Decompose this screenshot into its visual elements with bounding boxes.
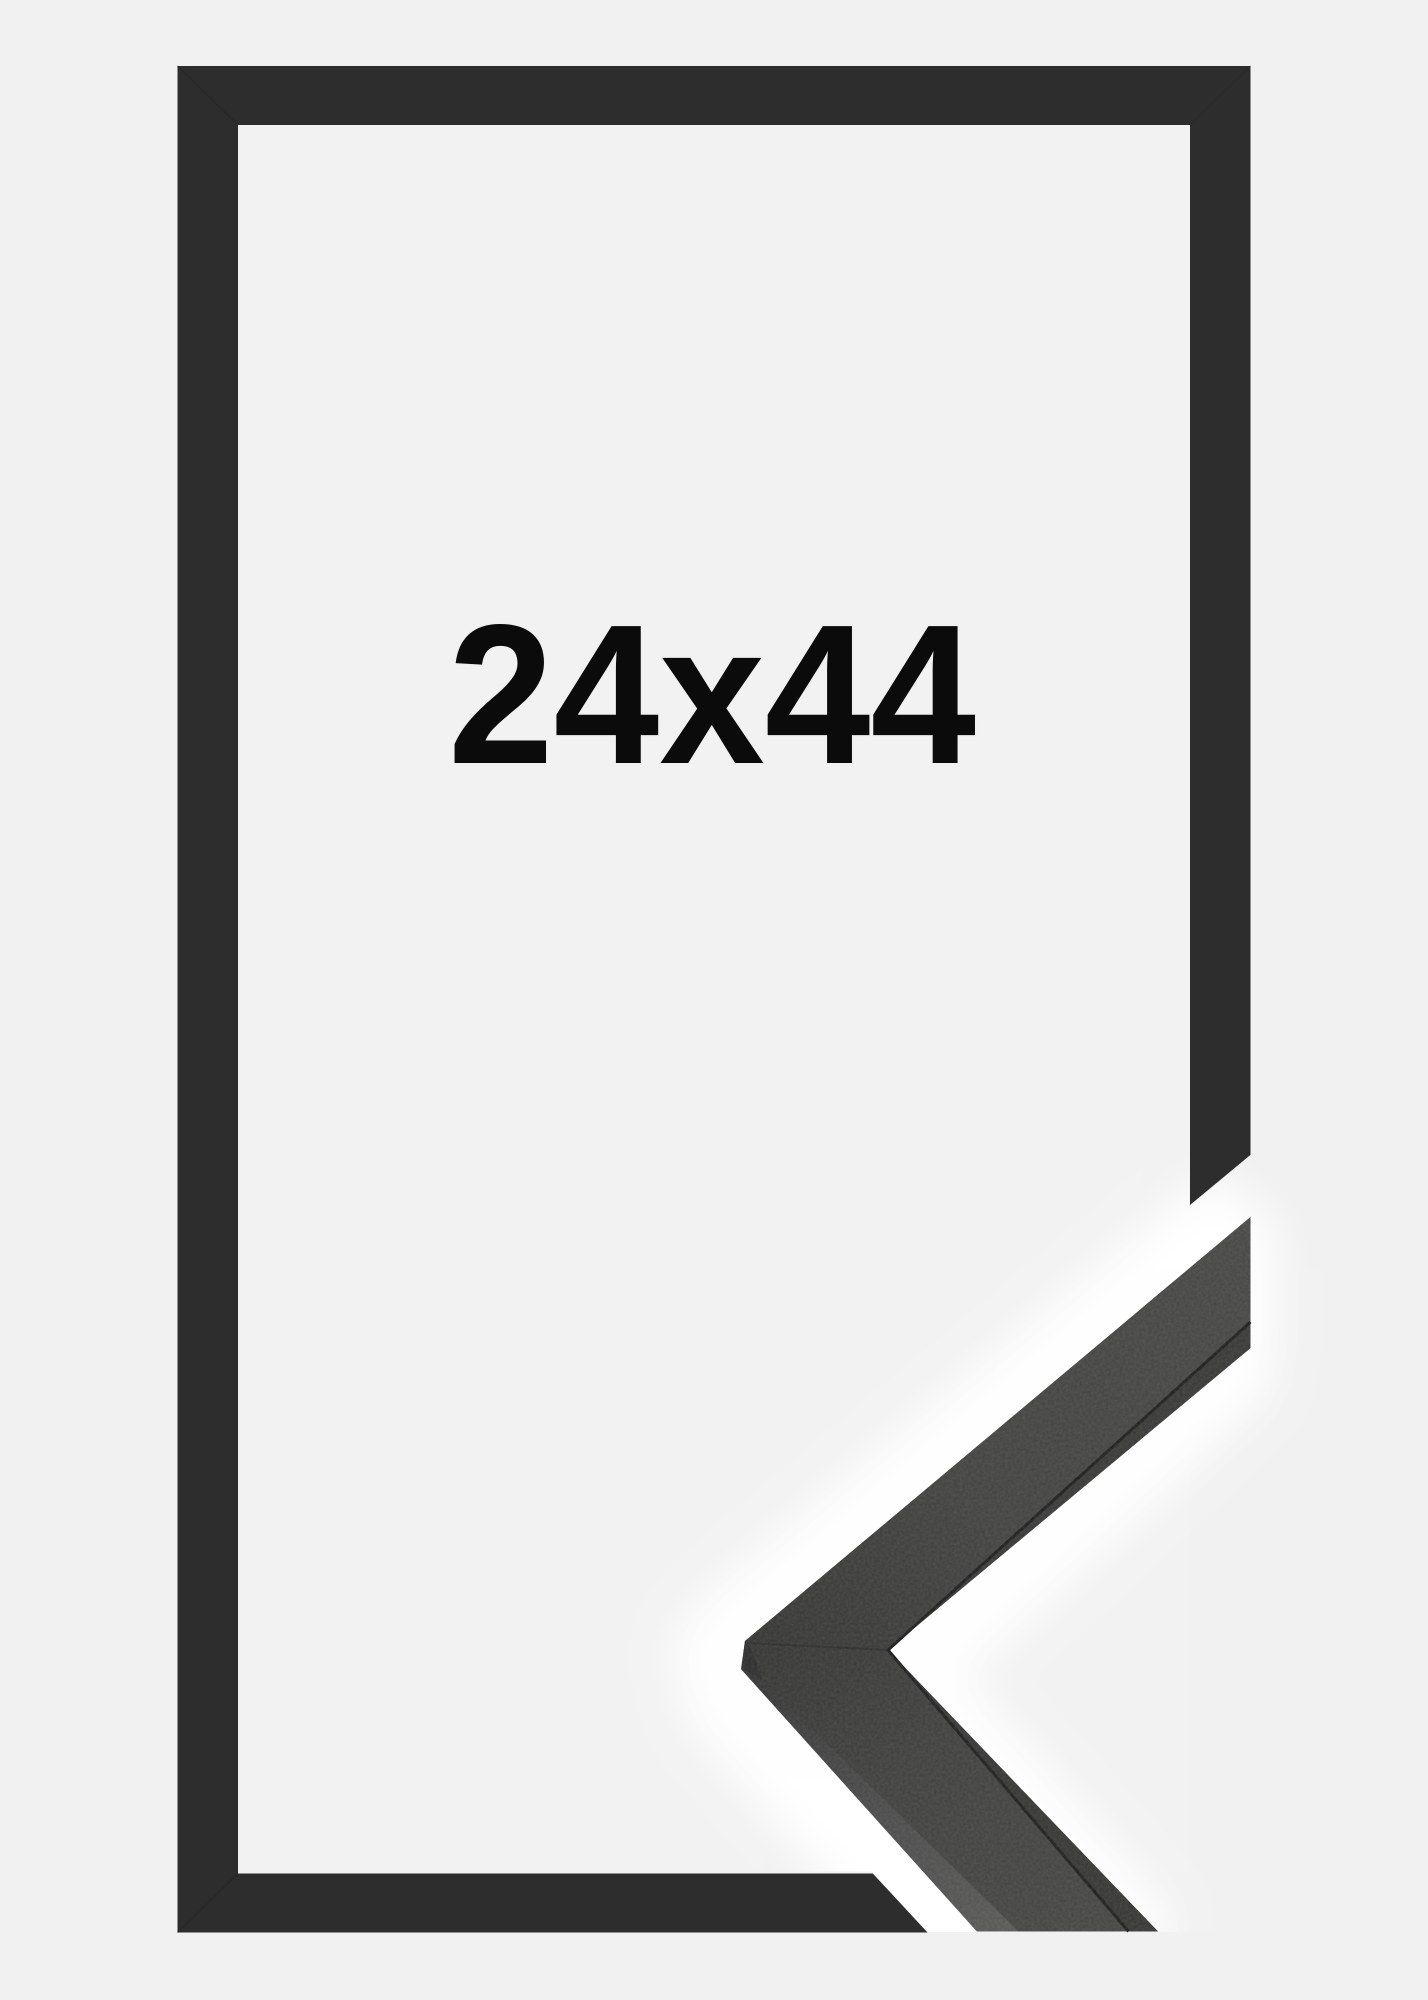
- svg-text:24x44: 24x44: [448, 584, 976, 806]
